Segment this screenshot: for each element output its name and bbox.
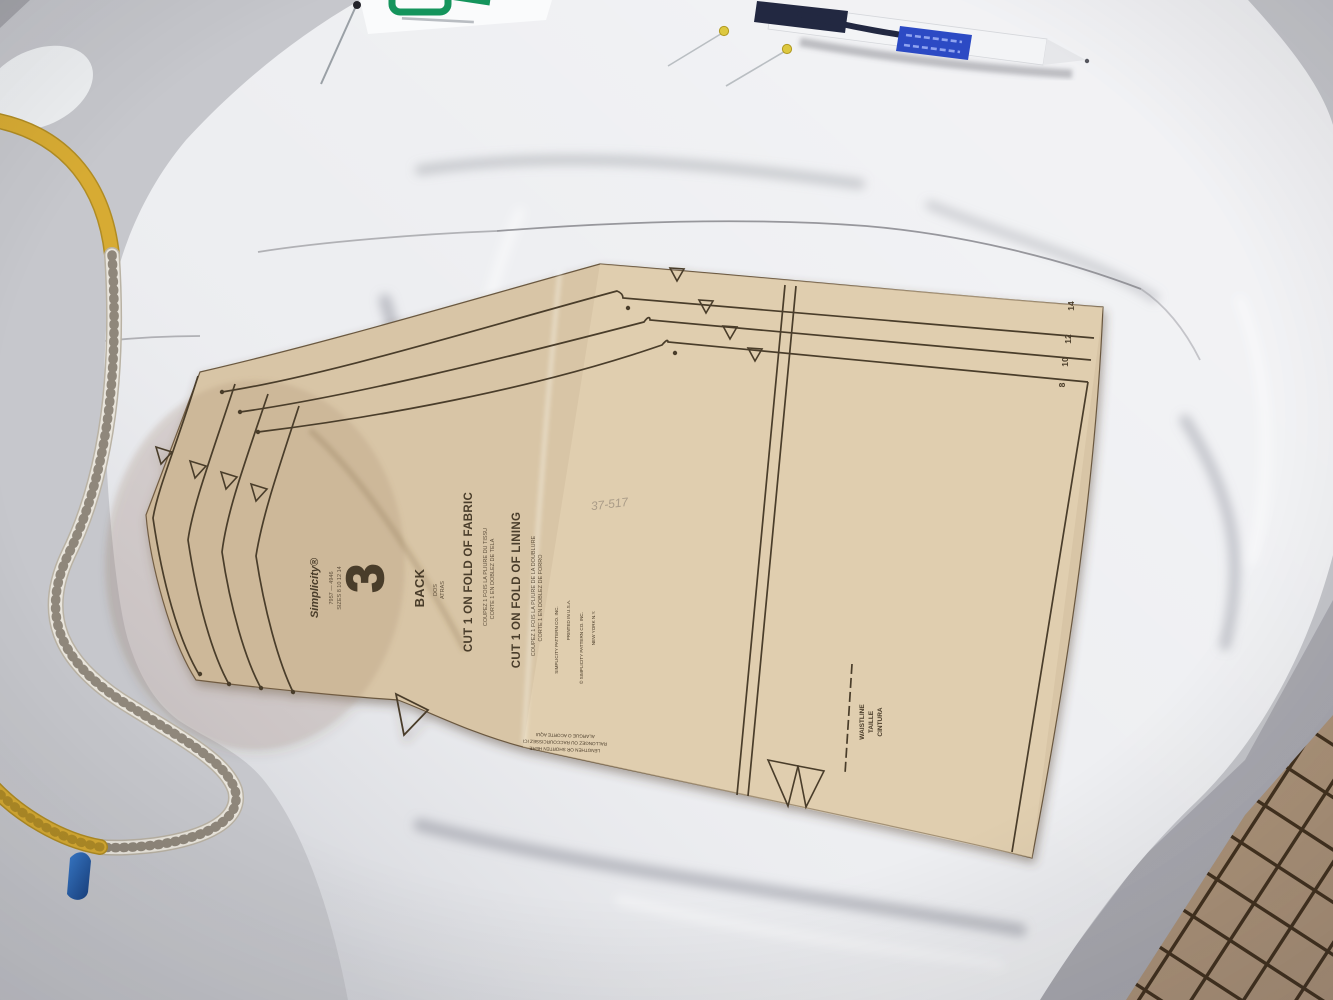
photo-vignette	[0, 0, 1333, 1000]
sewing-scene-photo: 14 12 10 8 Simplicity® 7957 — 4946 SIZES…	[0, 0, 1333, 1000]
scene-svg: 14 12 10 8 Simplicity® 7957 — 4946 SIZES…	[0, 0, 1333, 1000]
